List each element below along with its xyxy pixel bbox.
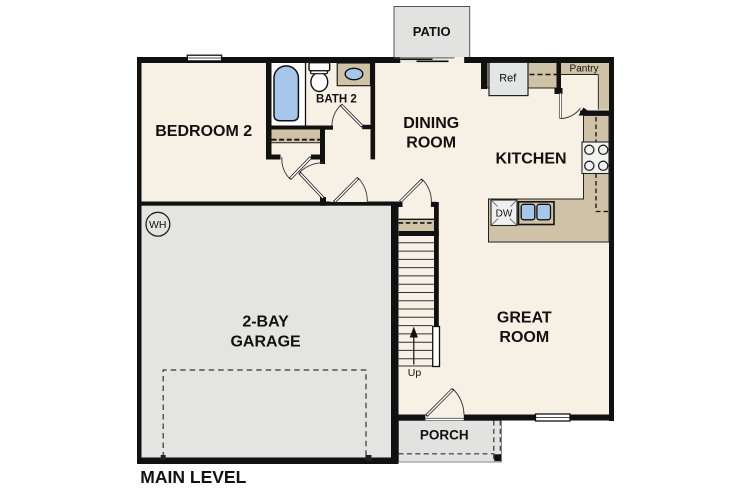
svg-text:PATIO: PATIO (413, 24, 451, 39)
svg-text:PORCH: PORCH (420, 428, 469, 443)
svg-text:KITCHEN: KITCHEN (495, 151, 566, 168)
svg-text:Up: Up (408, 367, 422, 379)
svg-text:ROOM: ROOM (499, 329, 549, 346)
svg-text:BEDROOM 2: BEDROOM 2 (155, 123, 252, 140)
svg-text:MAIN LEVEL: MAIN LEVEL (140, 467, 246, 487)
svg-text:GARAGE: GARAGE (230, 334, 301, 351)
svg-text:BATH 2: BATH 2 (316, 94, 357, 106)
svg-text:WH: WH (149, 219, 167, 231)
svg-text:DW: DW (496, 208, 513, 219)
svg-text:DINING: DINING (403, 115, 459, 132)
svg-text:ROOM: ROOM (406, 135, 456, 152)
svg-text:Ref: Ref (499, 72, 517, 84)
svg-text:2-BAY: 2-BAY (242, 314, 289, 331)
svg-text:GREAT: GREAT (497, 310, 552, 327)
svg-text:Pantry: Pantry (570, 64, 599, 75)
